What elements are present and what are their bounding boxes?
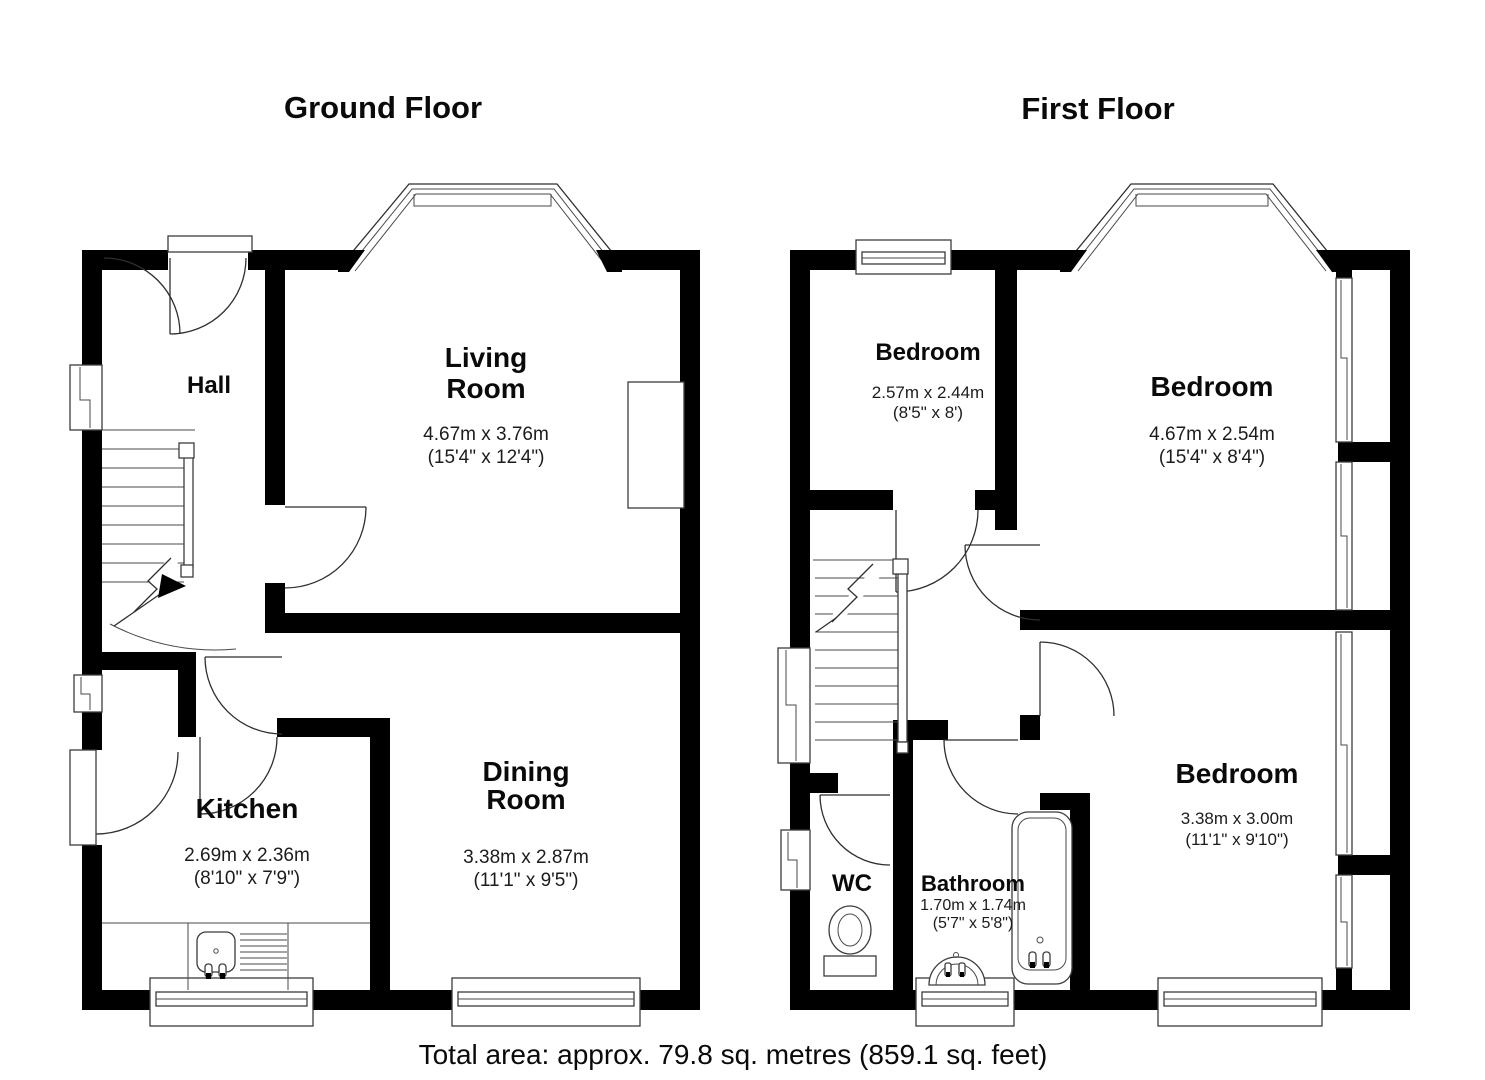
wall-segment	[790, 250, 810, 648]
drainer	[240, 934, 287, 970]
bedroom-back-dim-imperial: (11'1" x 9'10")	[1185, 830, 1288, 849]
stair-newel	[893, 559, 908, 574]
wall-segment	[82, 990, 153, 1010]
bedroom-side-window	[1336, 278, 1352, 442]
chimney-breast	[628, 382, 684, 508]
wall-segment	[1020, 610, 1393, 630]
kitchen-sink	[197, 932, 235, 972]
ground-floor-plan: Hall Living Room 4.67m x 3.76m (15'4" x …	[70, 184, 700, 1026]
living-door-arc	[285, 507, 366, 588]
first-doors	[820, 510, 1114, 865]
bedroom-front-door-arc	[965, 545, 1040, 620]
total-area-text: Total area: approx. 79.8 sq. metres (859…	[419, 1039, 1048, 1070]
bathroom-door-arc	[944, 740, 1018, 814]
bay-corner-wall	[1060, 250, 1087, 272]
wall-segment	[810, 490, 893, 510]
bay-window-sill	[414, 194, 551, 206]
wc-label: WC	[832, 870, 872, 897]
bedroom-back-label: Bedroom	[1176, 758, 1299, 789]
wall-segment	[82, 845, 102, 1010]
basin-tap	[946, 972, 950, 977]
bay-window-sill	[1136, 194, 1268, 206]
stair-rail	[184, 450, 193, 568]
bedroom-back-door-arc	[1040, 642, 1114, 716]
floorplan-page: Hall Living Room 4.67m x 3.76m (15'4" x …	[0, 0, 1485, 1080]
wall-segment	[248, 250, 340, 270]
wall-segment	[277, 718, 390, 737]
wall-segment	[947, 250, 1062, 270]
kitchen-dim-imperial: (8'10" x 7'9")	[194, 868, 300, 889]
bathroom-label: Bathroom	[921, 871, 1025, 896]
living-room-label: Living	[445, 342, 527, 373]
wall-segment	[370, 737, 390, 1010]
ground-windows	[70, 365, 640, 1026]
stair-newel	[897, 742, 908, 753]
bedroom-front-dim-imperial: (15'4" x 8'4")	[1159, 447, 1265, 468]
bay-window-bedroom	[1067, 184, 1336, 271]
bedroom-side-window	[1336, 632, 1352, 855]
ground-doors	[70, 236, 366, 845]
side-door-arc	[96, 752, 178, 834]
dining-room-dim-metric: 3.38m x 2.87m	[463, 847, 589, 868]
bedroom-back-dim-metric: 3.38m x 3.00m	[1181, 809, 1293, 828]
wall-segment	[640, 990, 700, 1010]
wall-segment	[1338, 442, 1390, 462]
kitchen-dim-metric: 2.69m x 2.36m	[184, 845, 310, 866]
wall-segment	[790, 763, 810, 830]
wall-segment	[82, 712, 102, 750]
kitchen-label: Kitchen	[196, 793, 299, 824]
hall-label: Hall	[187, 372, 231, 399]
wall-segment	[82, 250, 102, 365]
wall-segment	[102, 652, 178, 670]
living-room-label: Room	[446, 373, 525, 404]
dining-room-dim-imperial: (11'1" x 9'5")	[474, 870, 579, 891]
wall-segment	[810, 773, 838, 793]
dining-room-label: Room	[486, 784, 565, 815]
sink-tap	[220, 973, 225, 979]
front-door-leaf	[168, 236, 252, 252]
bay-window-glazing	[344, 184, 620, 262]
wall-segment	[913, 720, 948, 740]
bay-corner-wall	[596, 250, 622, 272]
ground-floor-title: Ground Floor	[284, 90, 482, 125]
wall-segment	[1070, 793, 1090, 1010]
bathtub-tap	[1044, 962, 1049, 968]
dining-door-arc	[205, 657, 282, 734]
basin-tap	[960, 972, 964, 977]
wall-segment	[265, 613, 700, 633]
bathtub-tap	[1030, 962, 1035, 968]
front-door-arc	[170, 258, 246, 334]
wall-segment	[82, 430, 102, 675]
bedroom-small-dim-metric: 2.57m x 2.44m	[872, 383, 984, 402]
bedroom-small-label: Bedroom	[875, 339, 980, 366]
wall-segment	[975, 490, 1017, 510]
stair-rail	[898, 566, 907, 742]
door-swing-curve	[110, 624, 236, 650]
floorplan-drawing: Hall Living Room 4.67m x 3.76m (15'4" x …	[0, 0, 1485, 1080]
dining-room-label: Dining	[482, 756, 569, 787]
stair-newel	[179, 443, 194, 458]
bay-window-living	[344, 184, 620, 271]
first-floor-plan: Bedroom 2.57m x 2.44m (8'5" x 8') Bedroo…	[778, 184, 1410, 1026]
bedroom-front-dim-metric: 4.67m x 2.54m	[1149, 424, 1275, 445]
stair-newel	[181, 565, 193, 577]
wall-segment	[620, 250, 700, 270]
side-door-leaf	[70, 750, 96, 845]
bay-corner-wall	[1316, 250, 1343, 272]
wall-segment	[1320, 990, 1410, 1010]
bathroom-dim-imperial: (5'7" x 5'8")	[933, 915, 1014, 932]
living-room-dim-metric: 4.67m x 3.76m	[423, 424, 549, 445]
first-floor-title: First Floor	[1021, 91, 1174, 126]
living-room-dim-imperial: (15'4" x 12'4")	[428, 447, 545, 468]
bedroom-front-label: Bedroom	[1151, 371, 1274, 402]
basin	[929, 957, 985, 985]
wall-segment	[893, 720, 913, 1010]
wall-segment	[265, 270, 285, 505]
bathroom-dim-metric: 1.70m x 1.74m	[920, 897, 1026, 914]
wall-segment	[1336, 968, 1352, 990]
wall-segment	[178, 652, 196, 737]
toilet-bowl	[829, 906, 871, 954]
toilet-cistern	[824, 956, 876, 976]
hall-window	[70, 365, 102, 430]
bay-corner-wall	[338, 250, 365, 272]
bedroom-small-dim-imperial: (8'5" x 8')	[893, 403, 963, 422]
sink-tap	[206, 973, 211, 979]
ground-stairs	[102, 430, 195, 626]
wc-door-arc	[820, 795, 890, 865]
stair-direction-line	[114, 590, 166, 626]
wall-segment	[1020, 715, 1040, 740]
wall-segment	[1338, 855, 1390, 875]
wall-segment	[680, 270, 700, 1010]
